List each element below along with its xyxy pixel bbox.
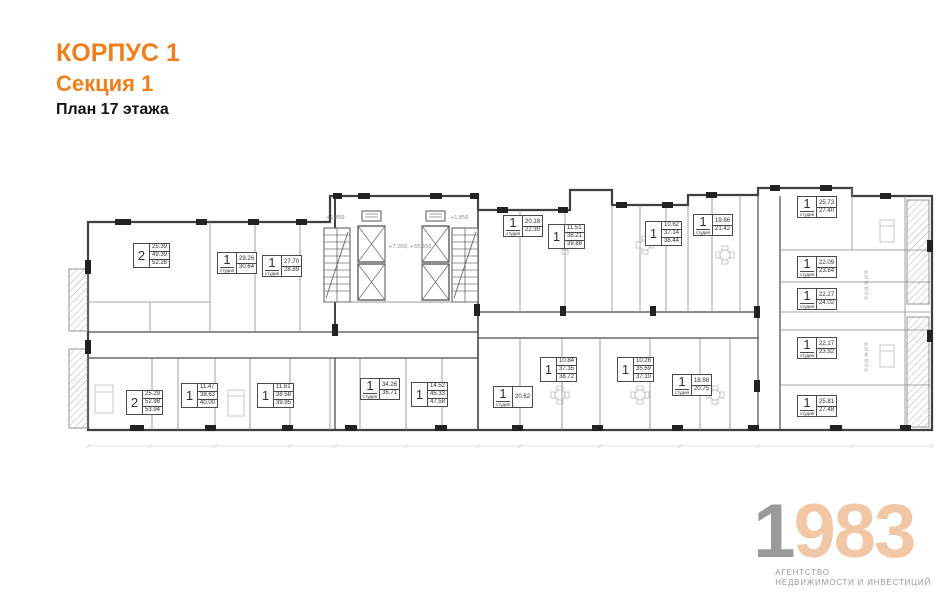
apartment-area-value: 11.51 [565,225,584,233]
apartment-label: 1студия19.8621.42 [693,214,733,236]
apartment-area-value: 14.52 [428,383,447,391]
apartment-rooms-count: 1 [650,227,657,240]
apartment-area-value: 37.14 [662,230,681,238]
apartment-areas: 11.4738.6340.00 [198,384,217,407]
apartment-rooms-count: 1 [262,389,269,402]
apartment-rooms-count: 1 [366,379,373,392]
apartment-area-value: 38.58 [274,392,293,400]
apartment-type-label: студия [265,270,279,276]
apartment-area-value: 37.35 [557,366,576,374]
apartment-rooms-count: 1 [803,289,810,302]
apartment-label: 225.2952.9853.94 [126,390,163,415]
logo-tagline-line2: НЕДВИЖИМОСТИ И ИНВЕСТИЦИЙ [775,578,931,588]
apartment-label: 111.6138.5839.95 [257,383,294,408]
apartment-area-value: 37.10 [634,374,653,381]
apartment-areas: 11.5138.2139.88 [565,225,584,248]
apartment-areas: 19.8621.42 [713,215,732,235]
apartment-area-value: 34.26 [380,382,399,390]
apartment-area-value: 39.88 [565,241,584,248]
apartment-label: 1студия25.8127.48 [797,395,837,417]
apartment-label: 110.6237.1438.44 [645,221,682,246]
apartment-rooms-count: 1 [803,257,810,270]
agency-logo: 1983 АГЕНТСТВО НЕДВИЖИМОСТИ И ИНВЕСТИЦИЙ [753,500,931,588]
apartment-rooms-count: 1 [509,216,516,229]
apartment-label: 1студия25.7327.40 [797,196,837,218]
apartment-label: 1студия20.62 [493,386,533,408]
apartment-areas: 34.2636.71 [380,379,399,399]
apartment-areas: 10.6237.1438.44 [662,222,681,245]
apartment-area-value: 24.02 [817,300,836,307]
apartment-label: 1студия18.9820.75 [672,374,712,396]
apartment-area-value: 39.95 [274,400,293,407]
apartment-rooms-count: 1 [499,387,506,400]
apartment-area-value: 49.39 [150,252,169,260]
apartment-label: 1студия22.0923.84 [797,256,837,278]
apartment-rooms-count: 1 [553,230,560,243]
apartment-area-value: 10.84 [557,358,576,366]
apartment-areas: 11.6138.5839.95 [274,384,293,407]
apartment-label: 111.5138.2139.88 [548,224,585,249]
apartment-area-value: 45.33 [428,391,447,399]
apartment-area-value: 10.26 [634,358,653,366]
apartment-area-value: 18.98 [692,378,711,386]
logo-digit-gray: 1 [753,489,793,574]
apartment-areas: 14.5245.3347.58 [428,383,447,406]
apartment-areas: 25.7327.40 [817,197,836,217]
apartment-area-value: 10.62 [662,222,681,230]
apartment-area-value: 29.26 [237,256,256,264]
section-title: Секция 1 [56,72,180,96]
apartment-area-value: 20.18 [523,219,542,227]
apartment-area-value: 28.89 [282,267,301,274]
apartment-areas: 10.8437.3538.72 [557,358,576,381]
apartment-rooms-count: 1 [186,389,193,402]
apartment-label: 114.5245.3347.58 [411,382,448,407]
apartment-area-value: 20.75 [692,386,711,393]
apartment-label: 110.8437.3538.72 [540,357,577,382]
apartment-label: 1студия29.2630.64 [217,252,257,274]
apartment-area-value: 11.61 [274,384,293,392]
apartment-label: 1студия22.1723.92 [797,337,837,359]
apartment-area-value: 36.71 [380,390,399,397]
apartment-areas: 25.2952.9853.94 [143,391,162,414]
apartment-type-label: студия [696,229,710,235]
apartment-area-value: 38.72 [557,374,576,381]
apartment-area-value: 40.00 [198,400,217,407]
apartment-area-value: 53.94 [143,407,162,414]
apartment-type-label: студия [800,211,814,217]
apartment-type-label: студия [675,389,689,395]
apartment-area-value: 27.70 [282,259,301,267]
apartment-area-value: 35.69 [634,366,653,374]
apartment-rooms-count: 1 [622,363,629,376]
apartment-rooms-count: 1 [803,396,810,409]
apartment-areas: 25.3949.3952.28 [150,244,169,267]
apartment-rooms-count: 1 [699,215,706,228]
apartment-label: 225.3949.3952.28 [133,243,170,268]
apartment-rooms-count: 1 [803,338,810,351]
apartment-area-value: 25.29 [143,391,162,399]
apartment-type-label: студия [506,230,520,236]
apartment-label: 1студия22.2724.02 [797,288,837,310]
apartment-rooms-count: 1 [678,375,685,388]
apartment-area-value: 11.47 [198,384,217,392]
apartment-area-value: 25.39 [150,244,169,252]
apartment-label: 1студия20.1822.30 [503,215,543,237]
apartment-type-label: студия [363,393,377,399]
apartment-areas: 25.8127.48 [817,396,836,416]
apartment-area-value: 52.98 [143,399,162,407]
apartment-areas: 22.1723.92 [817,338,836,358]
apartment-area-value: 25.81 [817,399,836,407]
apartment-label: 1студия34.2636.71 [360,378,400,400]
apartment-areas: 10.2635.6937.10 [634,358,653,381]
apartment-rooms-count: 1 [545,363,552,376]
apartment-area-value: 25.73 [817,200,836,208]
apartment-type-label: студия [800,271,814,277]
apartment-label: 1студия27.7028.89 [262,255,302,277]
apartment-type-label: студия [800,303,814,309]
apartment-area-value: 19.86 [713,218,732,226]
apartment-areas: 20.1822.30 [523,216,542,236]
apartment-area-value: 47.58 [428,399,447,406]
floor-plan-title: План 17 этажа [56,101,180,119]
apartment-areas: 22.2724.02 [817,289,836,309]
apartment-label: 111.4738.6340.00 [181,383,218,408]
apartment-area-value: 22.09 [817,260,836,268]
apartment-area-value: 38.63 [198,392,217,400]
apartment-area-value: 22.30 [523,227,542,234]
apartment-type-label: студия [800,352,814,358]
apartment-area-value: 23.92 [817,349,836,356]
apartment-areas: 29.2630.64 [237,253,256,273]
apartment-area-value: 22.17 [817,341,836,349]
logo-year: 1983 [753,500,931,565]
apartment-area-value: 27.40 [817,208,836,215]
apartment-type-label: студия [496,401,510,407]
apartment-rooms-count: 1 [416,388,423,401]
apartment-area-value: 38.21 [565,233,584,241]
apartment-label: 110.2635.6937.10 [617,357,654,382]
apartment-area-value: 38.44 [662,238,681,245]
apartment-areas: 18.9820.75 [692,375,711,395]
apartment-area-value: 22.27 [817,292,836,300]
apartment-type-label: студия [220,267,234,273]
apartment-area-value: 23.84 [817,268,836,275]
building-title: КОРПУС 1 [56,40,180,68]
apartment-rooms-count: 1 [223,253,230,266]
apartment-rooms-count: 2 [131,396,138,409]
apartment-rooms-count: 1 [268,256,275,269]
apartment-type-label: студия [800,410,814,416]
apartment-area-value: 20.62 [513,394,532,401]
apartment-rooms-count: 1 [803,197,810,210]
apartment-area-value: 30.64 [237,264,256,271]
apartment-areas: 20.62 [513,387,532,407]
apartment-area-value: 27.48 [817,407,836,414]
apartment-areas: 22.0923.84 [817,257,836,277]
apartment-rooms-count: 2 [138,249,145,262]
apartment-areas: 27.7028.89 [282,256,301,276]
apartment-area-value: 52.28 [150,260,169,267]
apartment-area-value: 21.42 [713,226,732,233]
logo-digits-accent: 983 [794,489,915,574]
page-header: КОРПУС 1 Секция 1 План 17 этажа [56,40,180,118]
